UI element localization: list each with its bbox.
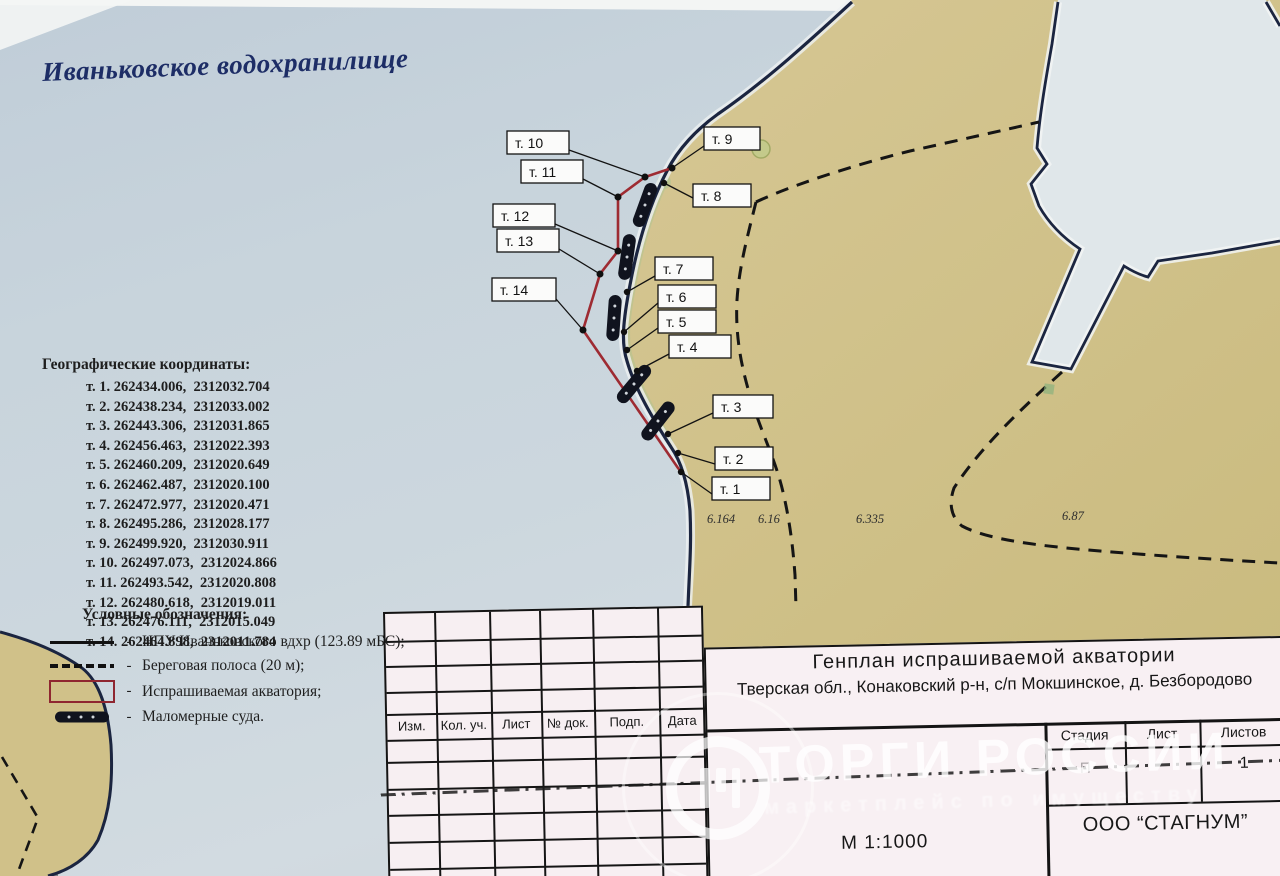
- point-label: т. 10: [515, 135, 543, 151]
- green-plot-symbol: [1043, 383, 1054, 394]
- legend-heading: Условные обозначения:: [82, 606, 405, 624]
- scale-value: М 1:1000: [740, 829, 1030, 857]
- legend-item-label: Испрашиваемая акватория;: [142, 683, 322, 701]
- revision-table: Изм. Кол. уч. Лист № док. Подп. Дата: [383, 606, 709, 876]
- point-label: т. 11: [529, 164, 556, 180]
- stage-label: Стадия: [1044, 722, 1124, 748]
- sheets-label: Листов: [1199, 719, 1280, 745]
- company-name: ООО “СТАГНУМ”: [1044, 810, 1280, 838]
- depth-mark: 6.164: [707, 512, 735, 526]
- depth-mark: 6.335: [856, 512, 884, 526]
- point-label: т. 14: [500, 282, 528, 298]
- npu-line-swatch: [50, 641, 114, 644]
- title-block: Изм. Кол. уч. Лист № док. Подп. Дата Ген…: [383, 594, 1280, 876]
- depth-mark: 6.16: [758, 512, 781, 526]
- legend-separator: -: [116, 709, 142, 726]
- legend-item-requested-area: - Испрашиваемая акватория;: [48, 678, 405, 705]
- point-label: т. 13: [505, 233, 533, 249]
- boat-icon: [53, 710, 111, 724]
- requested-area-swatch: [49, 680, 115, 703]
- point-label: т. 12: [501, 208, 529, 224]
- stamp-main-block: Генплан испрашиваемой акватории Тверская…: [704, 636, 1280, 876]
- revision-col-list: Лист: [491, 710, 542, 738]
- shore-strip-swatch: [50, 664, 114, 668]
- legend-item-npu: - НПУ Иваньковского вдхр (123.89 мБС);: [48, 630, 405, 654]
- drawing-title: Генплан испрашиваемой акватории Тверская…: [706, 642, 1280, 701]
- legend-item-boats: - Маломерные суда.: [48, 705, 405, 729]
- legend-item-shore-strip: - Береговая полоса (20 м);: [48, 654, 405, 678]
- legend-separator: -: [116, 683, 142, 700]
- point-label: т. 5: [666, 314, 687, 330]
- legend-block: Условные обозначения: - НПУ Иваньковског…: [48, 606, 405, 729]
- legend-item-label: Береговая полоса (20 м);: [142, 657, 304, 675]
- revision-col-ndok: № док.: [541, 709, 595, 737]
- revision-col-podp: Подп.: [594, 707, 660, 735]
- point-label: т. 4: [677, 339, 698, 355]
- revision-col-koluch: Кол. уч.: [436, 711, 492, 739]
- revision-col-data: Дата: [659, 707, 706, 735]
- point-label: т. 6: [666, 289, 687, 305]
- legend-item-label: Маломерные суда.: [142, 708, 264, 726]
- point-label: т. 3: [721, 399, 742, 415]
- legend-separator: -: [116, 658, 142, 675]
- sheet-label: Лист: [1124, 721, 1199, 747]
- point-label: т. 2: [723, 451, 744, 467]
- stamp-line: [1046, 800, 1280, 807]
- point-label: т. 1: [720, 481, 741, 497]
- depth-mark: 6.87: [1062, 509, 1085, 523]
- point-label: т. 7: [663, 261, 684, 277]
- legend-separator: -: [116, 634, 142, 651]
- scanned-genplan-document: т. 1 т. 2 т. 3 т. 4 т. 5 т. 6 т. 7 т. 8 …: [0, 0, 1280, 876]
- point-label: т. 8: [701, 188, 722, 204]
- point-label: т. 9: [712, 131, 733, 147]
- legend-item-label: НПУ Иваньковского вдхр (123.89 мБС);: [142, 633, 405, 651]
